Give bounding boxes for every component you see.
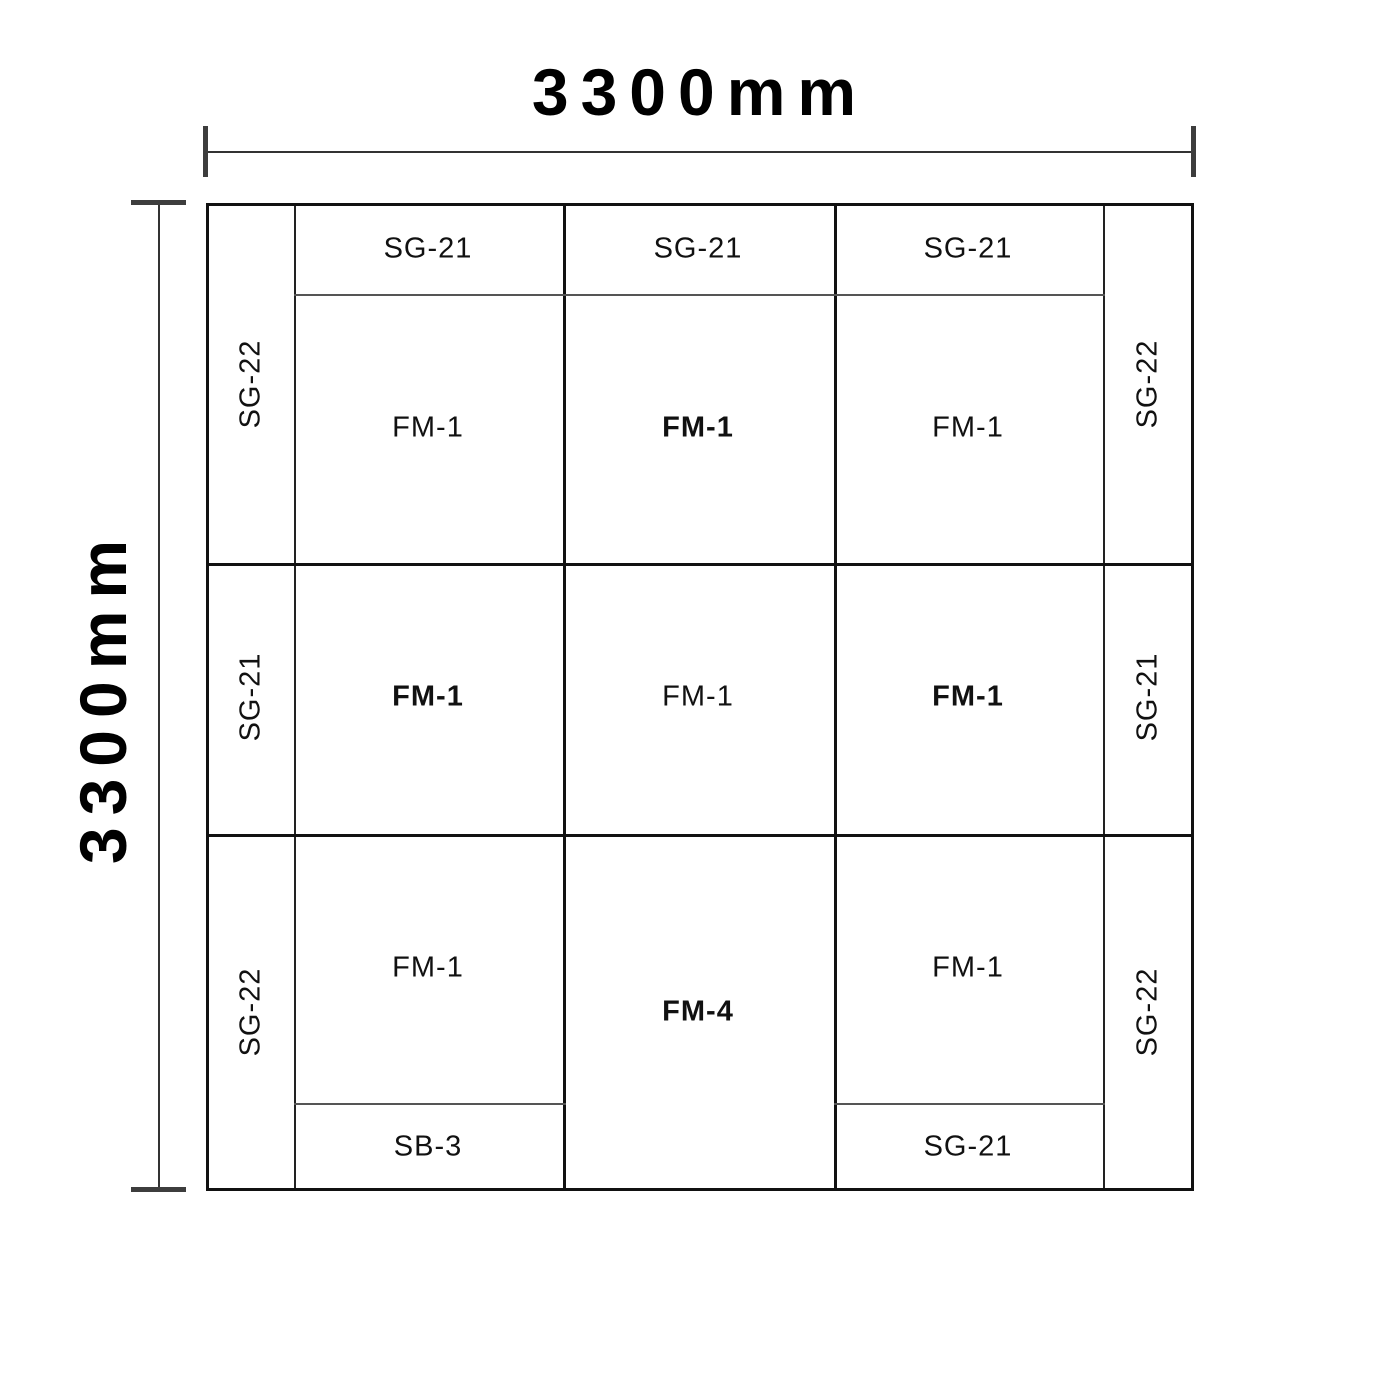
grid-line-h-row2-row3 xyxy=(209,834,1191,837)
side-label-sg21-left-mid: SG-21 xyxy=(235,653,268,742)
grid-line-h-row1-row2 xyxy=(209,563,1191,566)
strip-label-sg21-bottom-right: SG-21 xyxy=(924,1131,1013,1164)
panel-label-r1c3: FM-1 xyxy=(932,412,1004,445)
left-dimension-tick-bottom xyxy=(131,1187,186,1192)
panel-layout-drawing: 3300mm 3300mm SG-21 SG-21 SG-21 SG-22 SG… xyxy=(0,0,1400,1400)
strip-label-sg21-top-2: SG-21 xyxy=(654,233,743,266)
left-dimension-line xyxy=(158,203,160,1191)
panel-grid: SG-21 SG-21 SG-21 SG-22 SG-21 SG-22 SG-2… xyxy=(206,203,1194,1191)
panel-label-r1c2: FM-1 xyxy=(662,412,734,445)
left-dimension-label: 3300mm xyxy=(65,528,141,864)
top-dimension-label: 3300mm xyxy=(532,54,868,130)
left-dimension-tick-top xyxy=(131,200,186,205)
strip-label-sg21-top-1: SG-21 xyxy=(384,233,473,266)
grid-line-h-bottom-strip-right xyxy=(834,1103,1105,1105)
panel-label-r2c2: FM-1 xyxy=(662,681,734,714)
grid-line-v-right-strip xyxy=(1103,206,1105,1188)
grid-line-v-left-strip xyxy=(294,206,296,1188)
panel-label-r3c1: FM-1 xyxy=(392,952,464,985)
side-label-sg22-right-top: SG-22 xyxy=(1132,340,1165,429)
side-label-sg21-right-mid: SG-21 xyxy=(1132,653,1165,742)
panel-label-r3c3: FM-1 xyxy=(932,952,1004,985)
top-dimension-line xyxy=(206,151,1194,153)
panel-label-r1c1: FM-1 xyxy=(392,412,464,445)
strip-label-sg21-top-3: SG-21 xyxy=(924,233,1013,266)
strip-label-sb3-bottom-left: SB-3 xyxy=(394,1131,462,1164)
grid-line-v-col2-col3 xyxy=(834,206,837,1188)
grid-line-h-top-strip xyxy=(294,294,1105,296)
panel-label-r2c3: FM-1 xyxy=(932,681,1004,714)
top-dimension-tick-right xyxy=(1191,126,1196,177)
top-dimension-tick-left xyxy=(203,126,208,177)
side-label-sg22-right-bot: SG-22 xyxy=(1132,968,1165,1057)
side-label-sg22-left-top: SG-22 xyxy=(235,340,268,429)
panel-label-r3c2-fm4: FM-4 xyxy=(662,996,734,1029)
grid-line-h-bottom-strip-left xyxy=(294,1103,566,1105)
panel-label-r2c1: FM-1 xyxy=(392,681,464,714)
grid-line-v-col1-col2 xyxy=(563,206,566,1188)
side-label-sg22-left-bot: SG-22 xyxy=(235,968,268,1057)
